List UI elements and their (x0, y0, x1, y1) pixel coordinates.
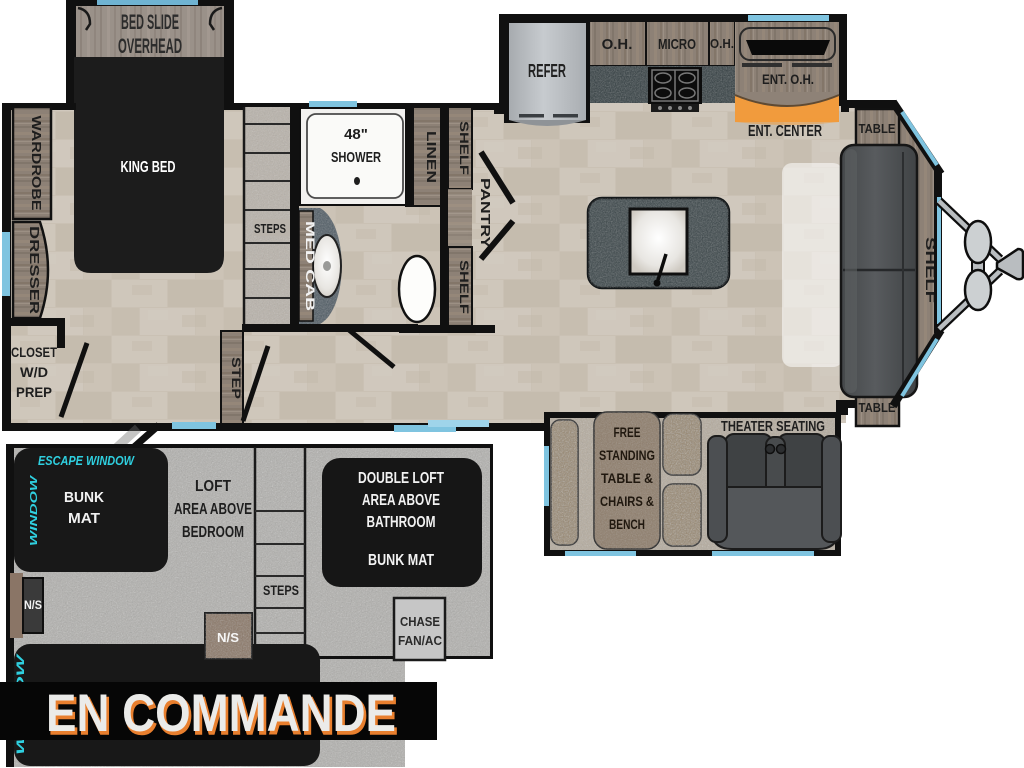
svg-text:W/D: W/D (20, 364, 48, 380)
svg-text:STEPS: STEPS (263, 582, 299, 598)
svg-text:ESCAPE WINDOW: ESCAPE WINDOW (38, 453, 135, 468)
svg-text:BED SLIDE: BED SLIDE (121, 11, 179, 34)
svg-text:N/S: N/S (217, 630, 239, 645)
svg-text:WINDOW: WINDOW (28, 474, 40, 546)
svg-text:AREA ABOVE: AREA ABOVE (362, 492, 440, 509)
svg-text:AREA ABOVE: AREA ABOVE (174, 501, 252, 518)
svg-text:SHELF: SHELF (457, 121, 471, 175)
svg-text:SHOWER: SHOWER (331, 149, 381, 166)
svg-text:O.H.: O.H. (602, 36, 633, 53)
svg-text:KING BED: KING BED (121, 159, 176, 176)
svg-text:PREP: PREP (16, 384, 52, 400)
svg-text:BUNK: BUNK (64, 489, 104, 506)
svg-text:LINEN: LINEN (424, 131, 439, 183)
svg-text:EN COMMANDE: EN COMMANDE (46, 684, 396, 743)
svg-text:ENT. CENTER: ENT. CENTER (748, 123, 822, 140)
svg-text:BENCH: BENCH (609, 516, 645, 532)
svg-text:BATHROOM: BATHROOM (367, 514, 436, 531)
svg-text:FAN/AC: FAN/AC (398, 633, 443, 648)
svg-text:MED CAB: MED CAB (303, 221, 317, 312)
svg-text:OVERHEAD: OVERHEAD (118, 35, 182, 58)
svg-text:BUNK MAT: BUNK MAT (368, 552, 434, 569)
svg-text:48": 48" (344, 126, 368, 143)
svg-text:MAT: MAT (68, 510, 100, 527)
svg-text:N/S: N/S (24, 598, 42, 612)
svg-text:DRESSER: DRESSER (27, 226, 42, 315)
svg-text:O.H.: O.H. (710, 36, 734, 51)
svg-text:DOUBLE LOFT: DOUBLE LOFT (358, 470, 444, 487)
svg-text:TABLE &: TABLE & (601, 470, 653, 486)
svg-text:LOFT: LOFT (195, 478, 231, 495)
svg-text:TABLE: TABLE (859, 400, 896, 415)
svg-text:CHASE: CHASE (400, 614, 440, 629)
svg-text:REFER: REFER (528, 61, 566, 81)
svg-text:TABLE: TABLE (859, 121, 896, 136)
svg-text:ENT. O.H.: ENT. O.H. (762, 71, 814, 87)
svg-text:SHELF: SHELF (457, 260, 471, 314)
svg-text:BEDROOM: BEDROOM (182, 524, 244, 541)
svg-text:WARDROBE: WARDROBE (29, 116, 44, 211)
svg-text:CLOSET: CLOSET (11, 344, 57, 360)
svg-text:CHAIRS &: CHAIRS & (600, 493, 654, 509)
svg-text:MICRO: MICRO (658, 36, 696, 53)
svg-text:PANTRY: PANTRY (478, 178, 493, 248)
svg-text:THEATER SEATING: THEATER SEATING (721, 418, 825, 435)
svg-text:STEP: STEP (229, 357, 243, 399)
svg-text:STANDING: STANDING (599, 447, 655, 463)
svg-text:FREE: FREE (614, 424, 641, 440)
svg-text:STEPS: STEPS (254, 221, 286, 236)
